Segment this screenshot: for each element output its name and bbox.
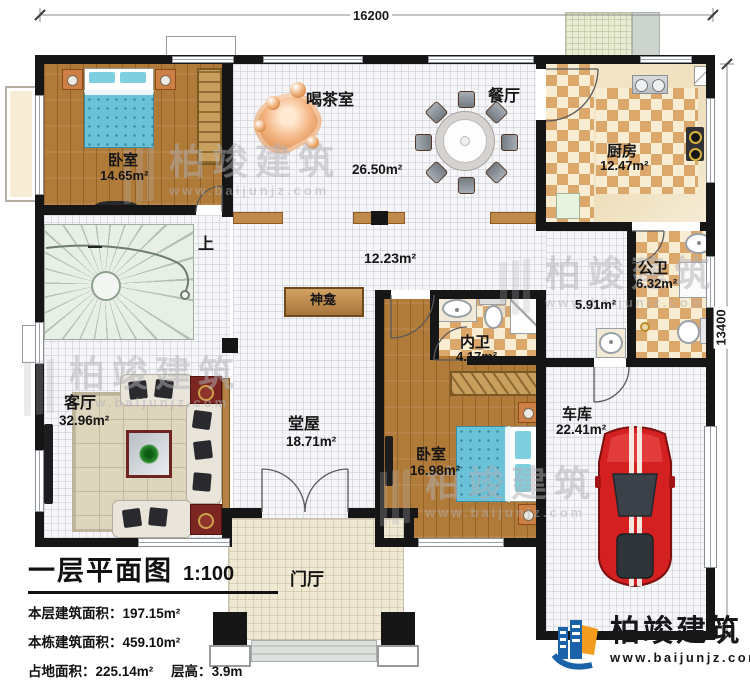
rear-porch-paving bbox=[565, 12, 632, 58]
title-block: 一层平面图 1:100 本层建筑面积：197.15m² 本栋建筑面积：459.1… bbox=[28, 549, 290, 689]
dining-chair bbox=[415, 134, 432, 151]
pillow bbox=[88, 71, 116, 84]
tea-stool bbox=[254, 120, 266, 132]
room-area-tea-room: 26.50m² bbox=[352, 162, 402, 178]
main-hall-floor bbox=[233, 290, 375, 538]
floor-height-value: 3.9m bbox=[212, 664, 243, 679]
company-name: 柏竣建筑 bbox=[610, 615, 750, 648]
dining-chair bbox=[458, 177, 475, 194]
bed-blanket bbox=[456, 426, 510, 502]
room-label-living: 客厅 bbox=[64, 395, 96, 413]
room-label-dining: 餐厅 bbox=[488, 88, 520, 106]
room-label-bedroom2: 卧室 bbox=[416, 446, 446, 463]
floor-height-label: 层高： bbox=[171, 664, 212, 679]
kitchen-checker-floor bbox=[596, 88, 698, 194]
pillow bbox=[119, 71, 147, 84]
wall bbox=[546, 358, 594, 367]
company-logo-icon bbox=[550, 615, 604, 673]
window bbox=[263, 56, 363, 63]
wall bbox=[536, 120, 546, 222]
title-rule bbox=[28, 591, 278, 594]
half-wall bbox=[490, 212, 536, 224]
window bbox=[35, 450, 44, 512]
tv bbox=[44, 424, 53, 504]
toilet-bowl bbox=[677, 320, 700, 344]
spiral-staircase bbox=[44, 224, 194, 340]
column bbox=[371, 211, 388, 225]
area-hallway: 5.91m² bbox=[575, 298, 616, 313]
fridge bbox=[556, 193, 580, 219]
tea-stool bbox=[290, 82, 306, 98]
room-area-public-bath: 6.32m² bbox=[636, 277, 677, 292]
wall bbox=[222, 55, 233, 217]
footprint-row: 占地面积：225.14m² 层高：3.9m bbox=[28, 660, 290, 680]
staircase-hub bbox=[91, 271, 121, 301]
room-label-public-bath: 公卫 bbox=[638, 260, 668, 277]
wall bbox=[536, 55, 546, 69]
wall bbox=[430, 295, 439, 360]
wall bbox=[430, 290, 536, 299]
window bbox=[706, 98, 715, 183]
footprint-label: 占地面积： bbox=[28, 664, 96, 679]
sofa-right bbox=[186, 402, 222, 504]
nightstand bbox=[155, 69, 176, 90]
room-area-bedroom2: 16.98m² bbox=[410, 463, 460, 479]
total-area-row: 本栋建筑面积：459.10m² bbox=[28, 631, 290, 651]
wall bbox=[44, 205, 196, 215]
wardrobe bbox=[197, 68, 222, 165]
garage-door bbox=[704, 426, 717, 568]
kitchen-sink bbox=[632, 75, 668, 94]
wall bbox=[536, 290, 546, 631]
window bbox=[640, 56, 692, 63]
room-label-bedroom1: 卧室 bbox=[108, 152, 138, 169]
plant bbox=[139, 444, 159, 464]
company-logo: 柏竣建筑 www.baijunjz.com bbox=[550, 615, 750, 673]
room-area-ensuite: 4.17m² bbox=[456, 350, 497, 365]
dimension-width: 16200 bbox=[350, 8, 392, 23]
nightstand bbox=[62, 69, 83, 90]
ensuite-toilet-bowl bbox=[484, 305, 503, 329]
total-area-label: 本栋建筑面积： bbox=[28, 635, 123, 650]
side-table bbox=[190, 376, 222, 404]
stairs-up-label: 上 bbox=[198, 236, 214, 254]
window bbox=[35, 95, 44, 195]
room-area-bedroom1: 14.65m² bbox=[100, 169, 148, 184]
pillow bbox=[514, 430, 532, 460]
wall bbox=[35, 55, 715, 64]
window bbox=[35, 322, 44, 364]
room-label-garage: 车库 bbox=[562, 406, 592, 423]
window bbox=[172, 56, 234, 63]
floor-area-value: 197.15m² bbox=[123, 606, 181, 621]
area-corridor: 12.23m² bbox=[364, 250, 416, 266]
room-label-foyer: 门厅 bbox=[290, 570, 324, 590]
half-wall bbox=[233, 212, 283, 224]
total-area-value: 459.10m² bbox=[123, 635, 181, 650]
dining-table-center bbox=[460, 136, 470, 146]
label-shrine: 神龛 bbox=[310, 293, 336, 308]
window bbox=[706, 256, 715, 308]
dining-chair bbox=[458, 91, 475, 108]
dimension-height: 13400 bbox=[714, 306, 729, 348]
bay-window bbox=[5, 86, 37, 202]
side-table bbox=[190, 504, 222, 535]
wall bbox=[627, 231, 636, 358]
wall bbox=[626, 358, 715, 367]
bed-blanket bbox=[84, 90, 154, 148]
tea-stool bbox=[266, 96, 280, 110]
page-title: 一层平面图 bbox=[28, 549, 173, 588]
floor-plan: 柏竣建筑 www.baijunjz.com 柏竣建筑 www.baijunjz.… bbox=[0, 0, 750, 689]
ensuite-sink bbox=[442, 299, 472, 318]
pillow bbox=[514, 463, 532, 493]
tv bbox=[385, 436, 393, 486]
stove bbox=[686, 127, 704, 161]
wall bbox=[536, 222, 632, 231]
room-area-garage: 22.41m² bbox=[556, 422, 606, 438]
closet bbox=[450, 371, 542, 396]
floor-area-label: 本层建筑面积： bbox=[28, 606, 123, 621]
company-website: www.baijunjz.com bbox=[610, 650, 750, 665]
sofa-top bbox=[120, 374, 194, 406]
wall bbox=[404, 508, 414, 538]
drawing-scale: 1:100 bbox=[183, 563, 234, 588]
sports-car bbox=[591, 418, 679, 590]
column bbox=[222, 338, 238, 353]
dining-chair bbox=[501, 134, 518, 151]
room-label-tea-room: 喝茶室 bbox=[306, 92, 354, 110]
floor-drain-icon bbox=[640, 322, 650, 332]
hallway-sink bbox=[599, 332, 623, 354]
sofa-bottom bbox=[112, 500, 192, 538]
rear-porch-step bbox=[632, 12, 660, 58]
porch-column-base bbox=[377, 645, 419, 667]
footprint-value: 225.14m² bbox=[96, 664, 154, 679]
window bbox=[428, 56, 534, 63]
window bbox=[418, 538, 504, 547]
room-area-main-hall: 18.71m² bbox=[286, 434, 336, 450]
room-area-kitchen: 12.47m² bbox=[600, 159, 648, 174]
floor-area-row: 本层建筑面积：197.15m² bbox=[28, 602, 290, 622]
porch-column bbox=[381, 612, 415, 645]
tea-stool bbox=[306, 136, 319, 149]
room-area-living: 32.96m² bbox=[59, 413, 109, 429]
window bbox=[138, 538, 230, 547]
room-label-main-hall: 堂屋 bbox=[288, 416, 320, 434]
